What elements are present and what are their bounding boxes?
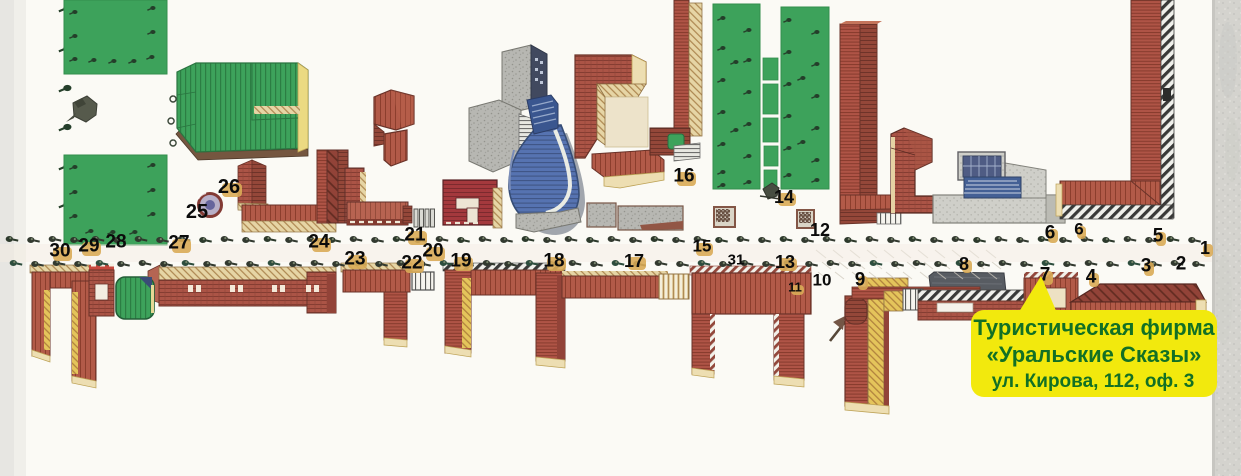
svg-text:28: 28 [105,232,126,253]
svg-text:24: 24 [308,232,330,253]
svg-text:27: 27 [168,233,189,254]
svg-text:3: 3 [1141,256,1152,277]
svg-text:2: 2 [1176,254,1187,275]
svg-text:26: 26 [218,176,240,198]
svg-text:18: 18 [543,251,564,272]
svg-text:13: 13 [775,252,795,272]
svg-text:Туристическая фирма: Туристическая фирма [973,315,1215,340]
svg-text:12: 12 [810,220,830,240]
svg-text:22: 22 [401,253,422,274]
svg-text:4: 4 [1086,267,1097,288]
svg-text:14: 14 [774,187,794,207]
svg-text:25: 25 [186,201,208,223]
svg-text:10: 10 [813,271,832,290]
svg-text:17: 17 [624,251,644,271]
svg-text:29: 29 [78,236,99,257]
svg-text:9: 9 [855,270,866,291]
svg-text:ул. Кирова, 112, оф. 3: ул. Кирова, 112, оф. 3 [992,371,1195,392]
svg-text:31: 31 [728,252,745,269]
svg-text:«Уральские Сказы»: «Уральские Сказы» [987,342,1202,367]
svg-text:19: 19 [450,251,471,272]
svg-text:23: 23 [344,249,365,270]
svg-text:8: 8 [959,254,969,274]
svg-text:6: 6 [1074,220,1083,239]
svg-text:1: 1 [1200,238,1210,258]
svg-text:30: 30 [49,241,70,262]
svg-text:16: 16 [673,166,694,187]
svg-text:6: 6 [1045,223,1056,244]
svg-text:11: 11 [788,280,802,295]
svg-text:5: 5 [1153,226,1164,247]
svg-text:15: 15 [693,237,712,256]
svg-text:21: 21 [404,225,426,246]
